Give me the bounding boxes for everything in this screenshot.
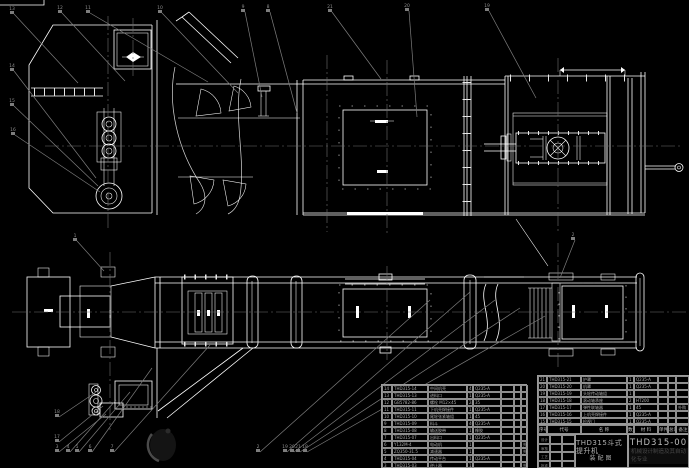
bom-cell <box>550 452 562 461</box>
leader-line <box>14 14 78 83</box>
bom-cell: THD315-07 <box>392 434 428 441</box>
callout-number: 12 <box>57 5 63 11</box>
bom-cell <box>514 399 521 406</box>
bom-cell: Y132M-4 <box>392 441 428 448</box>
bom-cell <box>676 383 689 390</box>
leader-line <box>162 13 238 93</box>
organization-name: 机械设计制造及其自动化专业 <box>629 448 688 464</box>
bom-cell: THD315-20 <box>547 383 581 390</box>
bom-cell: Q235-A <box>634 383 658 390</box>
leader-line <box>62 13 125 81</box>
bom-cell <box>668 376 676 383</box>
bom-cell: 减速器 <box>428 448 467 455</box>
watermark-logo <box>148 429 176 462</box>
bom-cell <box>521 413 528 420</box>
bom-cell: 1 <box>627 376 634 383</box>
bom-cell <box>521 420 528 427</box>
bom-cell <box>514 406 521 413</box>
bom-cell: 45 <box>473 413 501 420</box>
bom-cell: THD315-11 <box>392 406 428 413</box>
bom-cell <box>562 435 575 444</box>
bom-cell: THD315-08 <box>392 427 428 434</box>
bom-cell <box>521 434 528 441</box>
bom-cell: 电动机 <box>428 441 467 448</box>
bom-cell: Q235-A <box>473 420 501 427</box>
bom-cell: 输送胶带 <box>428 427 467 434</box>
bom-cell: THD315-14 <box>392 385 428 392</box>
titleblock-number-cell: THD315-00 机械设计制造及其自动化专业 <box>628 434 689 468</box>
bom-cell: 35 <box>473 399 501 406</box>
bom-cell: 1 <box>627 404 634 411</box>
bom-cell <box>501 427 514 434</box>
bom-cell <box>473 441 501 448</box>
bom-cell: Q235-A <box>473 434 501 441</box>
bom-cell: THD315-16 <box>547 411 581 418</box>
bom-cell: 14 <box>382 385 392 392</box>
bom-cell <box>634 390 658 397</box>
bom-cell: 批准 <box>538 461 550 468</box>
bom-cell <box>562 452 575 461</box>
bom-cell <box>514 392 521 399</box>
bom-cell: THD315-13 <box>392 392 428 399</box>
bom-cell <box>514 462 521 468</box>
bom-cell: 18 <box>538 397 547 404</box>
bom-cell <box>668 411 676 418</box>
drawing-doc-type: 装配图 <box>589 455 613 463</box>
bom-cell <box>501 399 514 406</box>
bom-cell <box>668 383 676 390</box>
callout-number: 17 <box>54 434 60 440</box>
bom-cell <box>521 455 528 462</box>
bom-cell: THD315-03 <box>392 462 428 468</box>
bom-table-left: 14THD315-14中间机壳4Q235-A13THD315-13进料口1Q23… <box>381 384 527 468</box>
bom-cell: THD315-21 <box>547 376 581 383</box>
bom-cell: ZQ350-31.5 <box>392 448 428 455</box>
bom-cell <box>658 411 668 418</box>
bom-cell: THD315-09 <box>392 420 428 427</box>
bom-cell: Q235-A <box>473 392 501 399</box>
leader-line <box>59 392 96 417</box>
bom-cell <box>521 385 528 392</box>
callout-number: 2 <box>257 444 260 450</box>
bom-cell: 进料口 <box>428 392 467 399</box>
bom-cell <box>550 461 562 468</box>
callout-number: 1 <box>74 233 77 239</box>
callout-number: 3 <box>56 444 59 450</box>
bom-cell: 下机壳焊接件 <box>428 406 467 413</box>
bom-cell: 外购 <box>521 448 528 455</box>
bom-cell: 料斗 <box>428 420 467 427</box>
callout-number: 9 <box>242 4 245 10</box>
bom-cell: 橡胶 <box>473 427 501 434</box>
bom-cell: Q235-A <box>634 411 658 418</box>
bom-cell: 滚动轴承座 <box>581 397 627 404</box>
callout-number: 10 <box>157 5 163 11</box>
bom-cell: 9 <box>382 420 392 427</box>
leader-line <box>270 12 297 113</box>
bom-cell <box>676 376 689 383</box>
callout-number: 21 <box>327 4 333 10</box>
bom-cell: 1 <box>627 383 634 390</box>
callout-number: 2 <box>572 232 575 238</box>
bom-cell: 21 <box>538 376 547 383</box>
bom-cell: 20 <box>538 383 547 390</box>
bom-cell <box>658 383 668 390</box>
bom-cell <box>668 404 676 411</box>
bom-cell <box>501 448 514 455</box>
leader-line <box>332 12 381 79</box>
bom-cell <box>501 392 514 399</box>
bom-cell: 头轮传动轴组 <box>581 390 627 397</box>
bom-cell <box>550 435 562 444</box>
bom-cell <box>514 441 521 448</box>
bom-cell <box>658 397 668 404</box>
callout-number: 7 <box>111 444 114 450</box>
bom-cell: 传动平台 <box>428 455 467 462</box>
leader-line <box>77 241 104 271</box>
callout-number: 8 <box>267 4 270 10</box>
callout-number: 11 <box>85 5 91 11</box>
bom-cell: 弹性联轴器 <box>581 404 627 411</box>
bom-cell <box>521 392 528 399</box>
bom-cell <box>676 390 689 397</box>
bom-cell: THD315-10 <box>392 413 428 420</box>
bom-cell: 2 <box>627 397 634 404</box>
callout-number: 19 <box>282 444 288 450</box>
titleblock-title-cell: THD315斗式提升机 装配图 <box>575 434 628 468</box>
bom-cell <box>501 462 514 468</box>
bom-cell <box>676 397 689 404</box>
bom-cell: THD315-17 <box>547 404 581 411</box>
bom-cell <box>501 441 514 448</box>
bom-cell <box>473 448 501 455</box>
callout-number: 19 <box>484 3 490 9</box>
bom-cell: 外购 <box>676 404 689 411</box>
bom-cell <box>562 461 575 468</box>
bom-cell <box>514 420 521 427</box>
bom-cell <box>514 427 521 434</box>
bom-cell: Q235-A <box>473 455 501 462</box>
sheet-border-corner <box>0 0 44 5</box>
callout-number: 6 <box>89 444 92 450</box>
bom-cell <box>658 390 668 397</box>
bom-cell: 尾轮张紧轴组 <box>428 413 467 420</box>
bom-cell: 3 <box>382 462 392 468</box>
bom-cell: 材 料 <box>634 425 658 434</box>
leader-line <box>15 135 100 192</box>
bom-cell: 6 <box>382 441 392 448</box>
bom-cell: 19 <box>538 390 547 397</box>
bom-cell: 单件 <box>658 425 668 434</box>
bom-cell: THD315-04 <box>392 455 428 462</box>
bom-cell: 审核 <box>538 444 550 453</box>
callout-number: 18 <box>54 409 60 415</box>
bom-cell: HT200 <box>634 397 658 404</box>
bom-cell: GB5782-86 <box>392 399 428 406</box>
bom-cell <box>514 448 521 455</box>
bom-cell <box>514 455 521 462</box>
bom-cell: 上机壳焊接件 <box>581 411 627 418</box>
bom-cell <box>514 385 521 392</box>
bom-cell: THD315-18 <box>547 397 581 404</box>
bom-cell: 机罩 <box>581 383 627 390</box>
bom-cell <box>501 413 514 420</box>
bom-cell <box>514 434 521 441</box>
bom-cell <box>668 397 676 404</box>
bom-cell: 外购 <box>521 441 528 448</box>
bom-cell: 逆止器 <box>428 462 467 468</box>
callout-number: 16 <box>10 127 16 133</box>
bom-cell: 13 <box>382 392 392 399</box>
bom-cell: Q235-A <box>473 406 501 413</box>
bom-cell: 45 <box>634 404 658 411</box>
bom-cell: 出料口 <box>428 434 467 441</box>
bom-cell <box>658 376 668 383</box>
bom-cell <box>550 444 562 453</box>
leader-line <box>560 240 575 278</box>
bom-cell: 名 称 <box>581 425 627 434</box>
leader-line <box>409 11 417 117</box>
callout-number: 18 <box>302 444 308 450</box>
front-elevation-view <box>29 12 683 266</box>
bom-cell: 11 <box>382 406 392 413</box>
bom-cell: Q235-A <box>473 385 501 392</box>
callout-number: 14 <box>9 63 15 69</box>
bom-cell <box>473 462 501 468</box>
bom-cell: 4 <box>382 455 392 462</box>
bom-table-right: 21THD315-21护罩1Q235-A20THD315-20机罩1Q235-A… <box>537 375 689 424</box>
bom-cell: 10 <box>382 413 392 420</box>
bom-cell: 数量 <box>627 425 634 434</box>
bom-cell: 代号 <box>547 425 581 434</box>
bom-cell: 17 <box>538 404 547 411</box>
bom-cell: 中间机壳 <box>428 385 467 392</box>
bom-cell <box>514 413 521 420</box>
bom-cell: Q235-A <box>634 376 658 383</box>
bom-cell <box>521 427 528 434</box>
callout-number: 5 <box>76 444 79 450</box>
bom-cell: 外购 <box>521 462 528 468</box>
bom-cell <box>501 420 514 427</box>
bom-cell <box>501 455 514 462</box>
bom-cell: 总计 <box>668 425 676 434</box>
bom-cell <box>521 399 528 406</box>
bom-cell <box>668 390 676 397</box>
bom-cell <box>562 444 575 453</box>
callout-number: 13 <box>9 6 15 12</box>
bom-cell: 设计 <box>538 435 550 444</box>
bom-cell: 工艺 <box>538 452 550 461</box>
bom-cell: 1 <box>627 411 634 418</box>
bom-cell: 8 <box>382 427 392 434</box>
bom-cell: 1 <box>627 390 634 397</box>
leader-line <box>59 406 103 442</box>
bom-cell <box>501 434 514 441</box>
bom-cell <box>676 411 689 418</box>
bom-cell <box>658 404 668 411</box>
bom-cell: 5 <box>382 448 392 455</box>
bom-header-row: 序号代号名 称数量材 料单件总计备注 <box>537 424 689 434</box>
bom-cell: 序号 <box>538 425 547 434</box>
leader-line <box>489 11 536 98</box>
callout-number: 4 <box>67 444 70 450</box>
callout-number: 15 <box>9 98 15 104</box>
bom-cell: 7 <box>382 434 392 441</box>
callout-number: 20 <box>289 444 295 450</box>
bom-cell <box>501 385 514 392</box>
bom-cell: 16 <box>538 411 547 418</box>
bom-cell <box>501 406 514 413</box>
callout-number: 21 <box>295 444 301 450</box>
titleblock-signature-grid: 设计审核工艺批准 <box>537 434 575 468</box>
callout-number: 20 <box>404 3 410 9</box>
bom-cell: 护罩 <box>581 376 627 383</box>
bom-cell <box>521 406 528 413</box>
bom-cell: 备注 <box>676 425 689 434</box>
drawing-number: THD315-00 <box>630 438 687 448</box>
bom-cell: 螺栓 M12×45 <box>428 399 467 406</box>
drawing-title: THD315斗式提升机 <box>576 439 627 455</box>
bom-cell: THD315-19 <box>547 390 581 397</box>
cad-sheet: 1312111098212019141516121817345672192021… <box>0 0 689 468</box>
bom-cell: 12 <box>382 399 392 406</box>
